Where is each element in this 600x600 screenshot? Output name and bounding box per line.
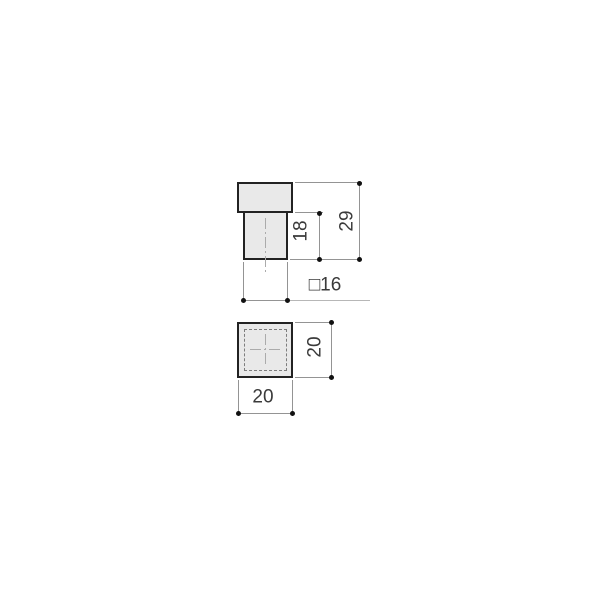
dimension-label-top-height: 20: [306, 336, 325, 357]
dimension-label-shank-height: 18: [292, 220, 311, 241]
dim-endpoint-dot: [285, 298, 290, 303]
extension-line-16-left: [243, 262, 244, 302]
dimension-line-20-right: [331, 322, 332, 378]
dim-endpoint-dot: [357, 257, 362, 262]
technical-drawing-canvas: 18 29 □16 20 20: [0, 0, 600, 600]
top-centerline-vertical: [265, 334, 266, 366]
extension-line-16-right: [287, 262, 288, 302]
dim-endpoint-dot: [317, 211, 322, 216]
extension-line-shank-bottom: [290, 259, 362, 260]
dim-endpoint-dot: [241, 298, 246, 303]
knob-cap-rect: [237, 182, 293, 213]
front-centerline: [265, 218, 266, 272]
dimension-label-square-section: □16: [309, 276, 342, 295]
dimension-line-20-bottom: [238, 413, 293, 414]
dimension-line-18: [319, 213, 320, 260]
extension-line-cap-top: [295, 182, 362, 183]
dim-endpoint-dot: [290, 411, 295, 416]
dim-endpoint-dot: [357, 181, 362, 186]
dimension-label-overall-height: 29: [338, 210, 357, 231]
dimension-line-29: [359, 183, 360, 260]
dimension-label-top-width: 20: [252, 388, 273, 407]
dimension-line-16: [243, 300, 288, 301]
leader-line-16: [288, 300, 370, 301]
dim-endpoint-dot: [317, 257, 322, 262]
dim-endpoint-dot: [236, 411, 241, 416]
dim-endpoint-dot: [329, 375, 334, 380]
dim-endpoint-dot: [329, 320, 334, 325]
